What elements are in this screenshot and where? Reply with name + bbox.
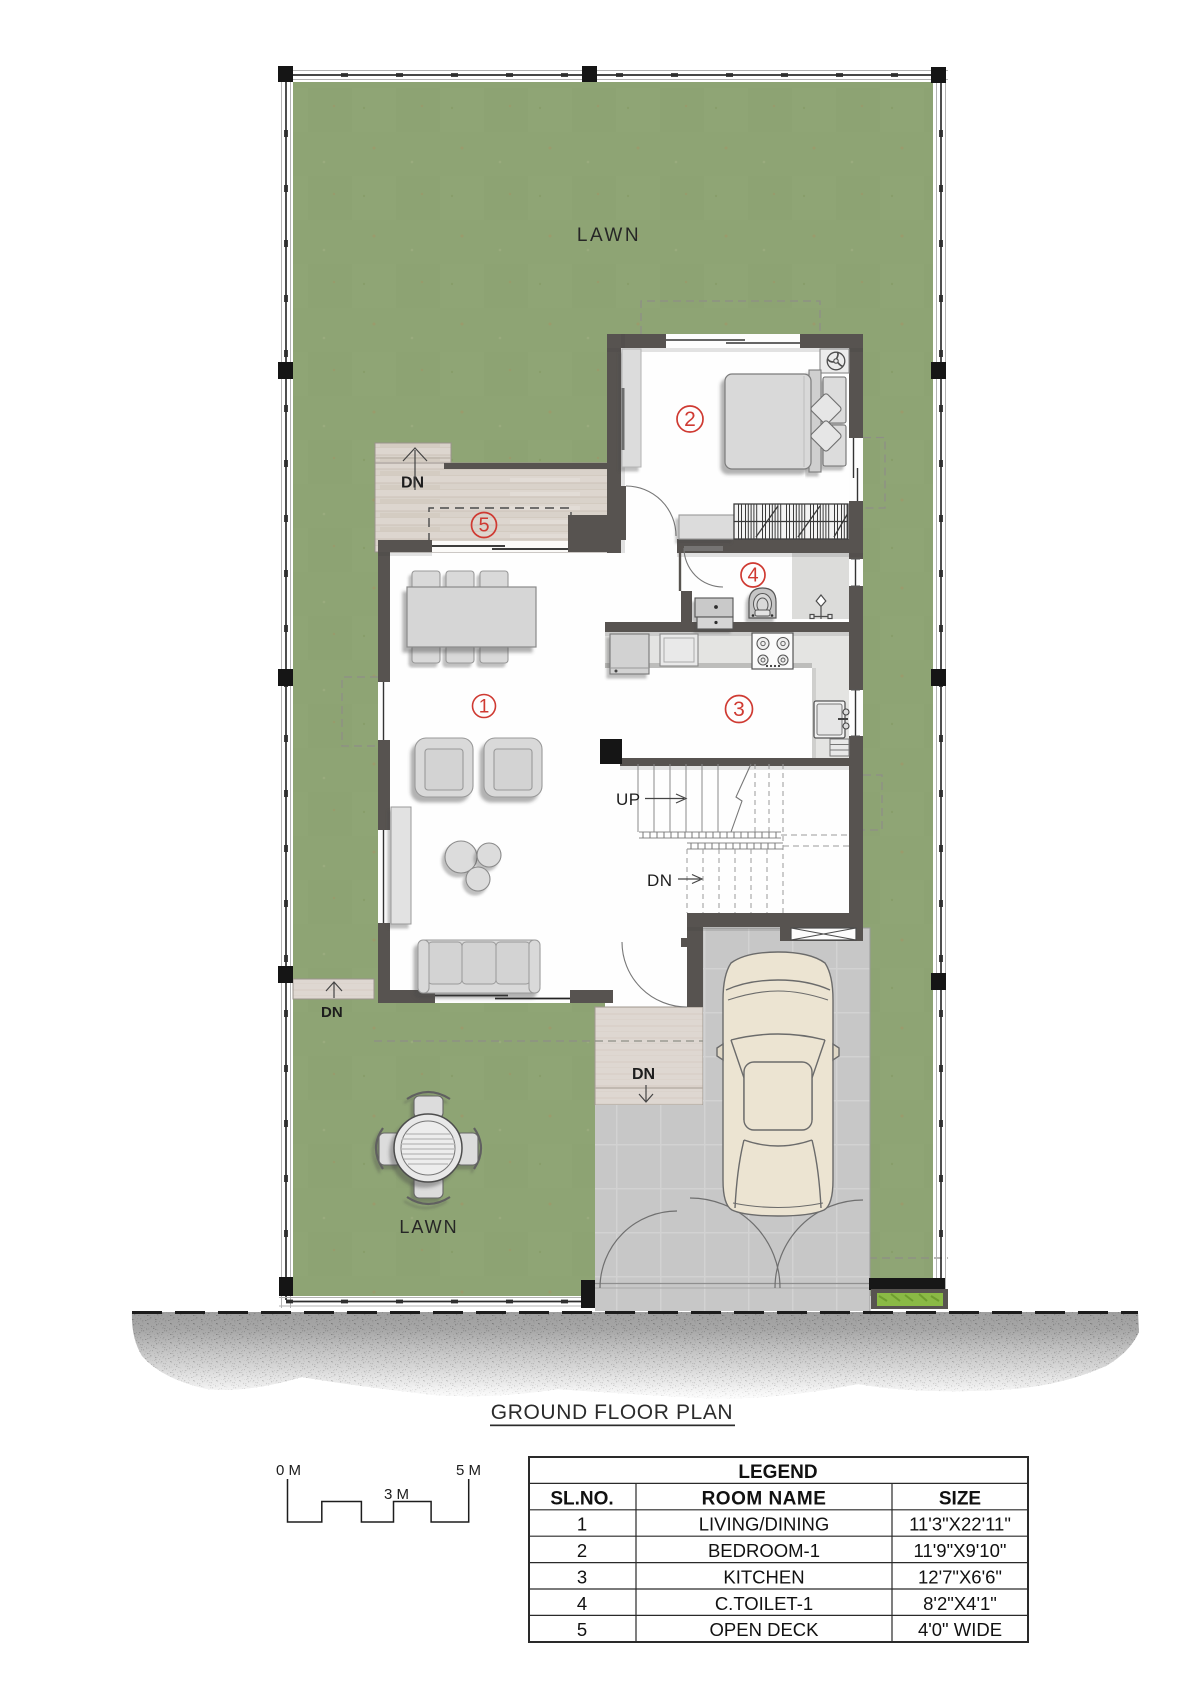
- svg-text:OPEN DECK: OPEN DECK: [710, 1619, 820, 1640]
- svg-text:11'3"X22'11": 11'3"X22'11": [909, 1514, 1011, 1535]
- svg-text:4: 4: [577, 1593, 587, 1614]
- svg-text:1: 1: [577, 1514, 587, 1535]
- svg-text:5: 5: [577, 1619, 587, 1640]
- svg-text:C.TOILET-1: C.TOILET-1: [715, 1593, 813, 1614]
- svg-text:3 M: 3 M: [384, 1486, 409, 1503]
- svg-text:3: 3: [577, 1566, 587, 1587]
- svg-text:2: 2: [684, 408, 696, 431]
- svg-text:LAWN: LAWN: [399, 1217, 458, 1237]
- svg-text:SIZE: SIZE: [939, 1489, 981, 1510]
- svg-text:11'9"X9'10": 11'9"X9'10": [914, 1540, 1007, 1561]
- svg-text:5: 5: [478, 515, 489, 537]
- svg-text:0 M: 0 M: [276, 1462, 301, 1479]
- svg-text:DN: DN: [632, 1066, 655, 1083]
- svg-text:GROUND FLOOR PLAN: GROUND FLOOR PLAN: [491, 1401, 733, 1424]
- svg-text:KITCHEN: KITCHEN: [723, 1566, 804, 1587]
- svg-text:8'2"X4'1": 8'2"X4'1": [923, 1593, 997, 1614]
- svg-text:LEGEND: LEGEND: [738, 1462, 817, 1483]
- svg-text:DN: DN: [647, 871, 673, 890]
- svg-text:12'7"X6'6": 12'7"X6'6": [918, 1566, 1002, 1587]
- svg-text:UP: UP: [616, 790, 641, 809]
- svg-text:1: 1: [479, 697, 490, 718]
- svg-text:LIVING/DINING: LIVING/DINING: [699, 1514, 830, 1535]
- svg-text:4: 4: [747, 565, 758, 587]
- svg-text:ROOM NAME: ROOM NAME: [702, 1489, 827, 1510]
- svg-text:DN: DN: [401, 475, 424, 492]
- svg-text:BEDROOM-1: BEDROOM-1: [708, 1540, 820, 1561]
- svg-text:SL.NO.: SL.NO.: [550, 1489, 613, 1510]
- svg-text:4'0" WIDE: 4'0" WIDE: [918, 1619, 1002, 1640]
- svg-text:2: 2: [577, 1540, 587, 1561]
- svg-text:DN: DN: [321, 1004, 343, 1021]
- svg-text:3: 3: [733, 698, 745, 721]
- svg-text:5 M: 5 M: [456, 1462, 481, 1479]
- svg-text:LAWN: LAWN: [577, 225, 641, 246]
